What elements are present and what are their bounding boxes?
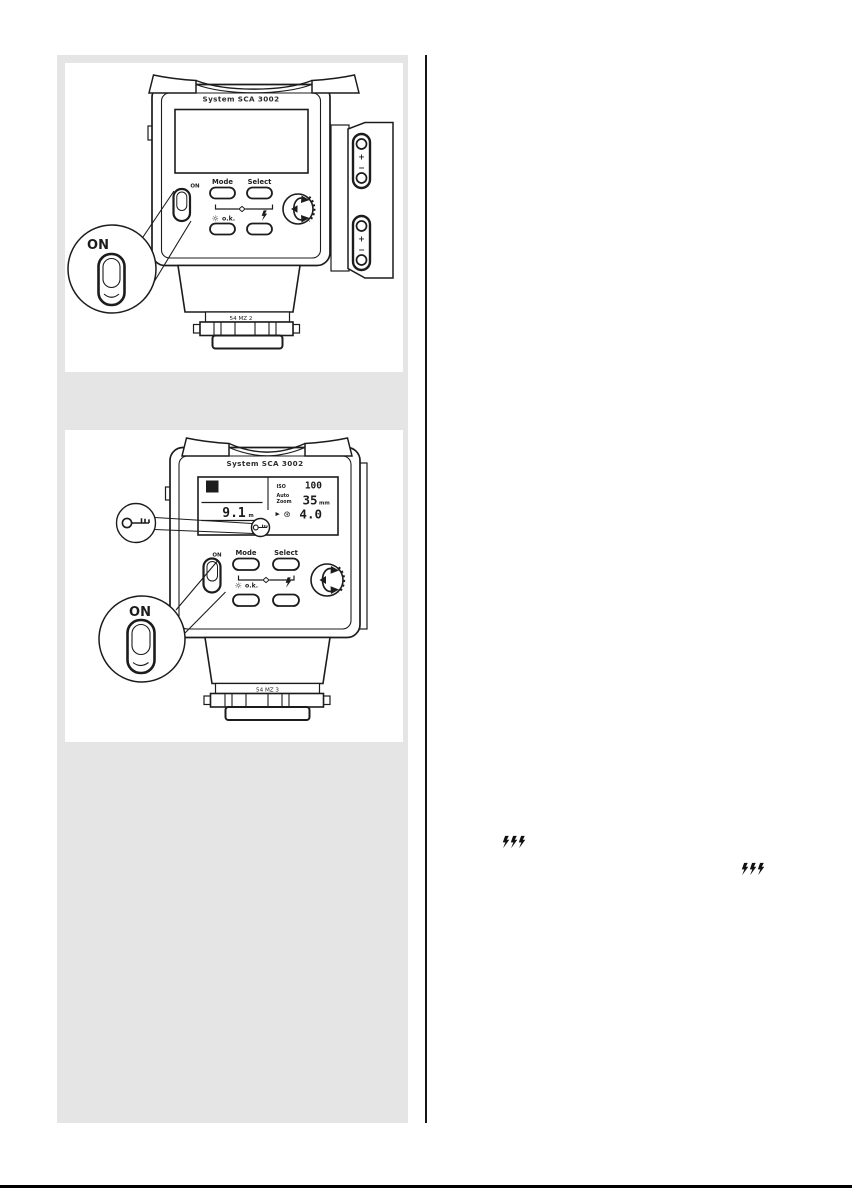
- sun-icon: ☼: [235, 582, 243, 592]
- figure2-system-label: System SCA 3002: [227, 459, 304, 468]
- iso-value: 100: [305, 481, 322, 492]
- mounting-foot: [213, 336, 283, 349]
- flash-bolt-icon: [741, 862, 749, 877]
- column-divider-line: [425, 55, 427, 1123]
- ok-button: [210, 224, 235, 235]
- mounting-foot: [226, 707, 310, 720]
- figure1-system-label: System SCA 3002: [203, 95, 280, 104]
- flash-ready-symbol-2: [741, 862, 765, 877]
- flash-ready-symbol-1: [502, 835, 526, 850]
- setting-dial: [283, 194, 314, 224]
- select-button-label: Select: [274, 549, 298, 557]
- manual-flash-button: [247, 224, 272, 235]
- manual-flash-button: [273, 595, 299, 607]
- plus-label: +: [358, 235, 365, 244]
- side-control-panel: + − + −: [348, 123, 393, 279]
- on-callout-label: ON: [87, 238, 109, 253]
- mode-button: [233, 559, 259, 571]
- flash-unit-54mz2-illustration: System SCA 3002 + −: [65, 63, 403, 372]
- mode-button-label: Mode: [212, 178, 233, 186]
- lcd-display-blank: [175, 110, 308, 174]
- distance-value: 9.1: [222, 506, 246, 521]
- select-button: [247, 188, 272, 199]
- distance-unit: m: [249, 513, 254, 519]
- side-rail: [331, 125, 349, 271]
- flash-bolt-icon: [518, 835, 526, 850]
- flash-unit-54mz3-illustration: System SCA 3002 A 9.1 m ISO 100 Auto Zoo…: [65, 430, 403, 742]
- flash-bolt-icon: [749, 862, 757, 877]
- flash-lower-body: 54 MZ 3: [204, 638, 330, 721]
- ok-button-label: o.k.: [222, 216, 235, 223]
- iso-label: ISO: [277, 484, 286, 490]
- ok-button-label: o.k.: [245, 583, 258, 590]
- select-button: [273, 559, 299, 571]
- minus-label: −: [358, 246, 365, 255]
- ok-button: [233, 595, 259, 607]
- auto-label: Auto: [277, 493, 290, 499]
- flash-bolt-icon: [510, 835, 518, 850]
- mode-button: [210, 188, 235, 199]
- aperture-value: 4.0: [299, 507, 322, 522]
- figure-2: System SCA 3002 A 9.1 m ISO 100 Auto Zoo…: [65, 430, 403, 742]
- mount-knurl-ring: [211, 694, 324, 708]
- flash-lower-body: 54 MZ 2: [178, 266, 300, 349]
- setting-dial: [311, 564, 344, 596]
- zoom-value: 35: [302, 493, 317, 508]
- model-label: 54 MZ 3: [256, 687, 279, 693]
- select-button-label: Select: [248, 178, 272, 186]
- mode-button-label: Mode: [236, 549, 257, 557]
- flash-bolt-icon: [757, 862, 765, 877]
- flash-bolt-icon: [502, 835, 510, 850]
- flash-body-outline: [170, 448, 360, 638]
- page-bottom-rule: [0, 1185, 852, 1188]
- manual-page: System SCA 3002 + −: [0, 0, 852, 1192]
- figure-1: System SCA 3002 + −: [65, 63, 403, 372]
- zoom-label: Zoom: [277, 499, 292, 505]
- auto-mode-badge-letter: A: [209, 483, 216, 493]
- on-callout-label: ON: [129, 605, 151, 620]
- aperture-icon: ⊛: [284, 510, 291, 520]
- callout-circle: [68, 225, 156, 313]
- on-switch-label: ON: [190, 184, 200, 190]
- minus-label: −: [358, 164, 365, 173]
- model-label: 54 MZ 2: [230, 316, 253, 322]
- plus-label: +: [358, 153, 365, 162]
- figure-panel: System SCA 3002 + −: [57, 55, 408, 1123]
